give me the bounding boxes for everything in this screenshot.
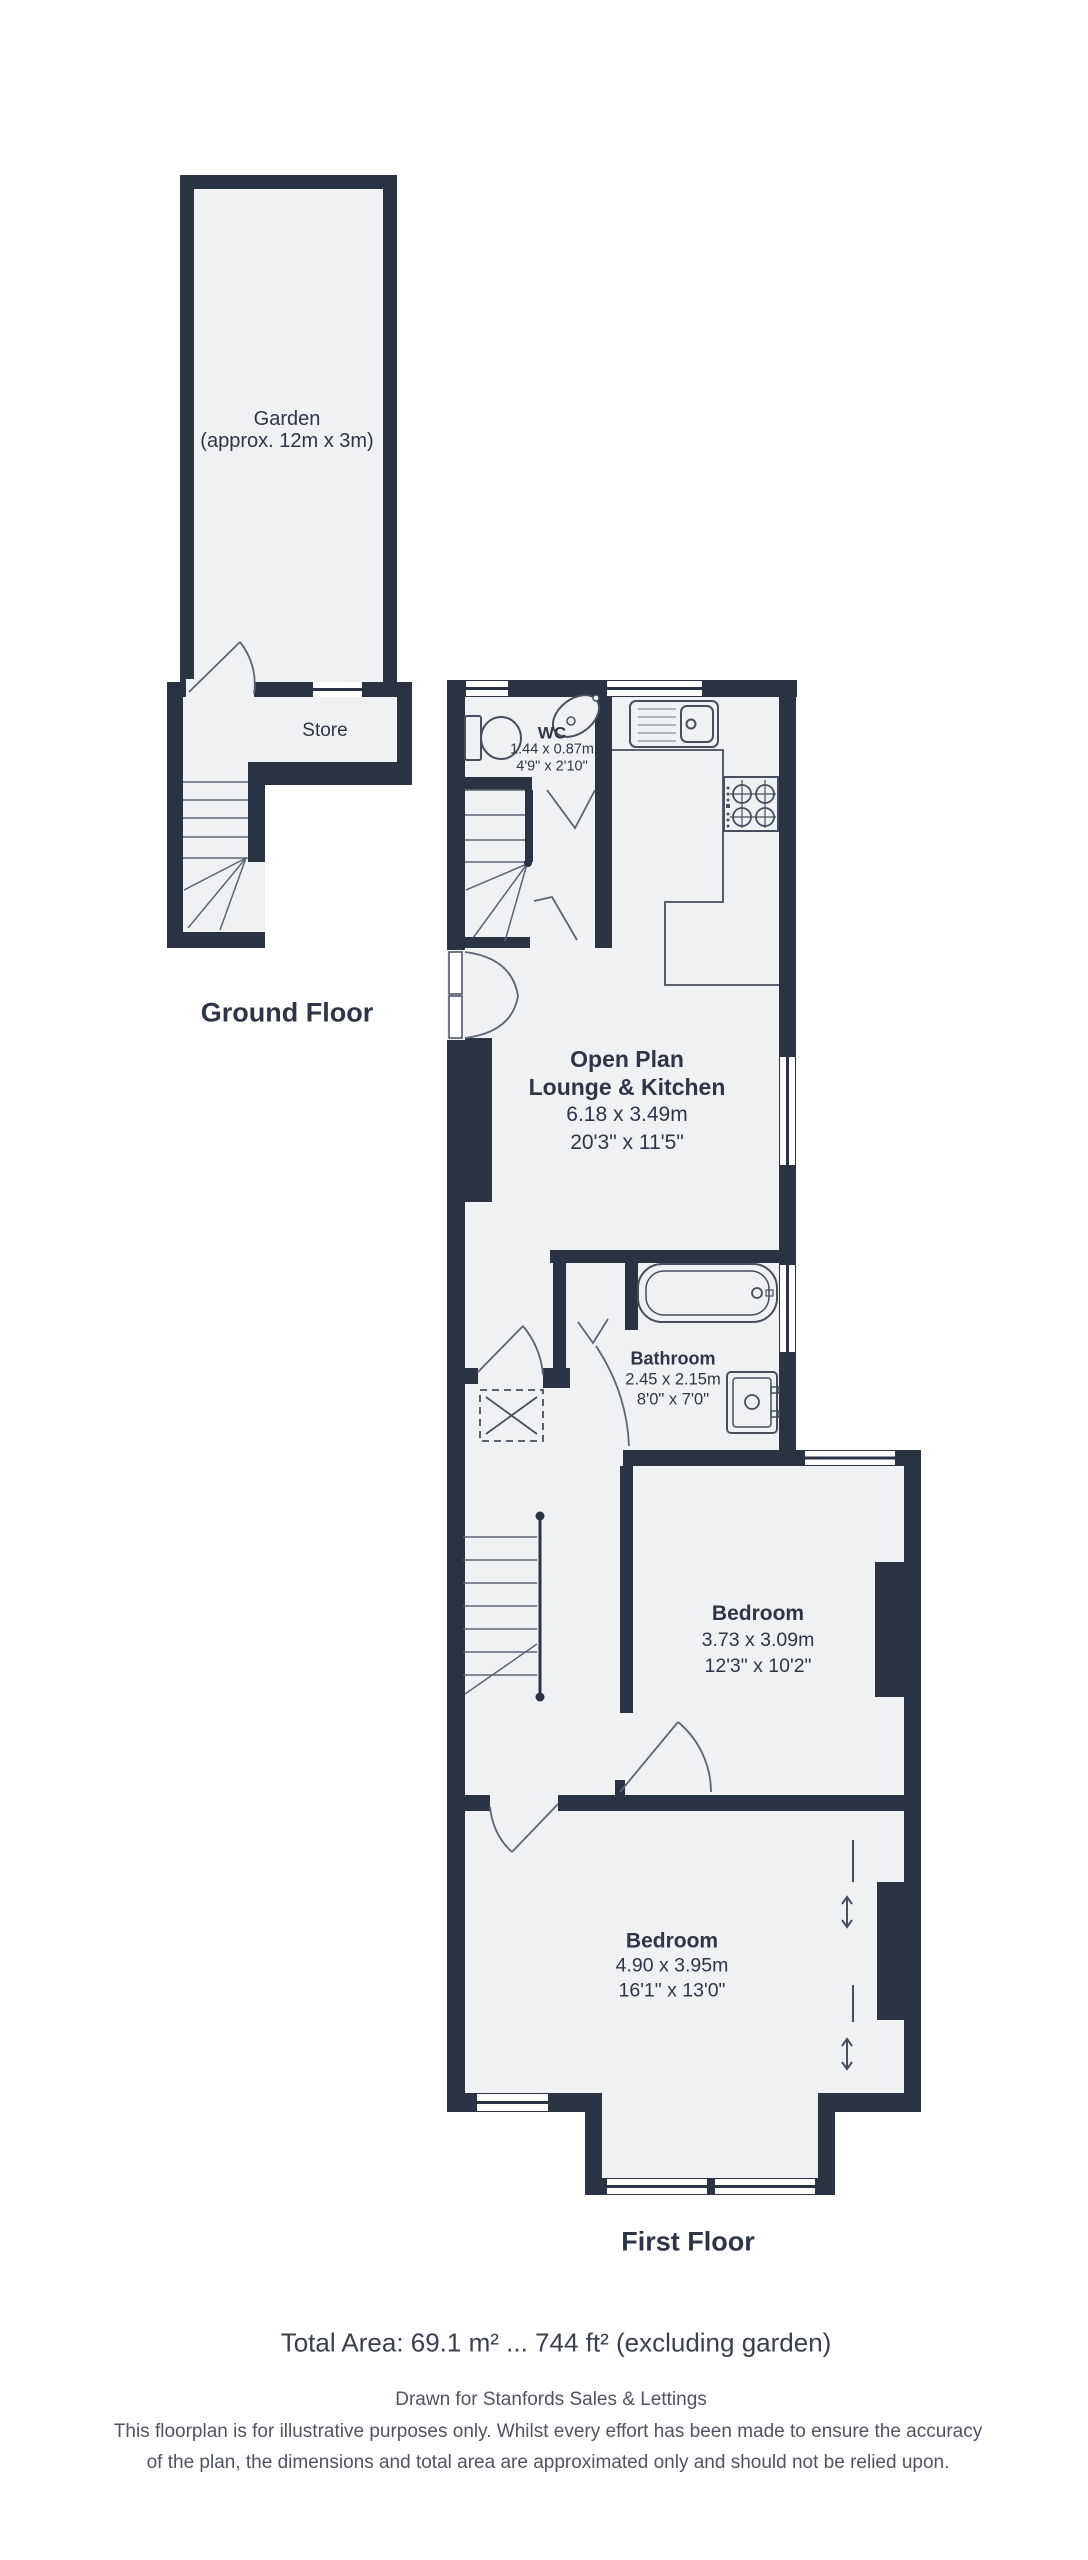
bathroom-label: Bathroom 2.45 x 2.15m 8'0" x 7'0" xyxy=(625,1348,720,1410)
bedroom-front-imperial: 16'1" x 13'0" xyxy=(616,1979,729,2004)
bathroom-name: Bathroom xyxy=(625,1348,720,1369)
kitchen-sink-icon xyxy=(630,701,718,747)
lounge-metric: 6.18 x 3.49m xyxy=(529,1101,726,1129)
lounge-imperial: 20'3" x 11'5" xyxy=(529,1129,726,1157)
ground-floor-plan xyxy=(167,175,412,948)
lounge-name-line1: Open Plan xyxy=(529,1046,726,1074)
garden-dims: (approx. 12m x 3m) xyxy=(200,430,373,452)
drawn-for-line: Drawn for Stanfords Sales & Lettings xyxy=(395,2389,707,2411)
bedroom-front-label: Bedroom 4.90 x 3.95m 16'1" x 13'0" xyxy=(616,1929,729,2004)
garden-name: Garden xyxy=(200,408,373,430)
total-area-line: Total Area: 69.1 m² ... 744 ft² (excludi… xyxy=(281,2328,832,2359)
store-label: Store xyxy=(302,720,347,742)
floorplan-sheet: Garden (approx. 12m x 3m) Store WC 1.44 … xyxy=(0,0,1088,2560)
bedroom-rear-metric: 3.73 x 3.09m xyxy=(702,1627,815,1653)
bedroom-front-metric: 4.90 x 3.95m xyxy=(616,1954,729,1979)
lounge-label: Open Plan Lounge & Kitchen 6.18 x 3.49m … xyxy=(529,1046,726,1156)
wc-metric: 1.44 x 0.87m xyxy=(510,742,594,759)
bathroom-imperial: 8'0" x 7'0" xyxy=(625,1389,720,1410)
bedroom-front-name: Bedroom xyxy=(616,1929,729,1954)
store-window xyxy=(313,682,362,697)
first-floor-title: First Floor xyxy=(621,2227,755,2258)
bedroom-rear-label: Bedroom 3.73 x 3.09m 12'3" x 10'2" xyxy=(702,1601,815,1679)
disclaimer-line2: of the plan, the dimensions and total ar… xyxy=(147,2452,950,2474)
wc-name: WC xyxy=(510,725,594,742)
bedroom-rear-name: Bedroom xyxy=(702,1601,815,1627)
floorplan-graphic xyxy=(0,0,1088,2560)
wc-imperial: 4'9" x 2'10" xyxy=(510,759,594,776)
disclaimer-line1: This floorplan is for illustrative purpo… xyxy=(114,2421,982,2443)
bedroom-rear-imperial: 12'3" x 10'2" xyxy=(702,1653,815,1679)
ground-floor-title: Ground Floor xyxy=(201,998,373,1029)
bathroom-metric: 2.45 x 2.15m xyxy=(625,1369,720,1390)
lounge-name-line2: Lounge & Kitchen xyxy=(529,1074,726,1102)
wc-label: WC 1.44 x 0.87m 4'9" x 2'10" xyxy=(510,725,594,776)
garden-label: Garden (approx. 12m x 3m) xyxy=(200,408,373,452)
